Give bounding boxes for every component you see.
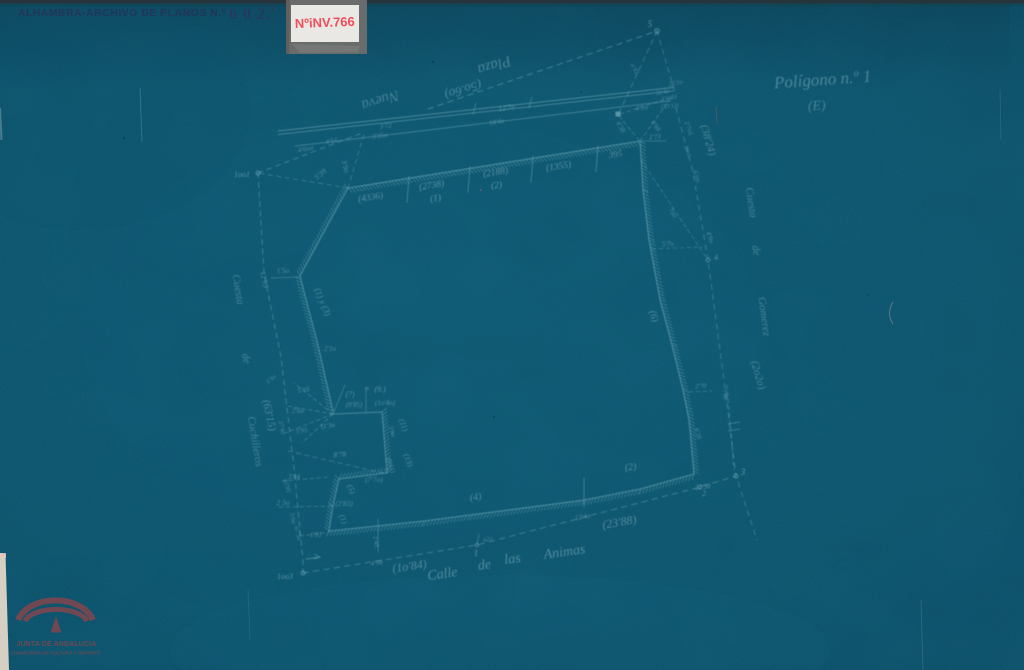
svg-text:1oo3: 1oo3 bbox=[277, 572, 293, 581]
svg-text:1: 1 bbox=[474, 548, 479, 558]
svg-text:4: 4 bbox=[714, 253, 718, 262]
svg-text:(4): (4) bbox=[469, 491, 483, 504]
svg-text:(2'83): (2'83) bbox=[335, 499, 353, 508]
svg-text:2'70: 2'70 bbox=[695, 383, 707, 391]
svg-text:(9.): (9.) bbox=[374, 385, 386, 394]
svg-text:1'5o: 1'5o bbox=[277, 266, 290, 275]
svg-text:m: m bbox=[365, 386, 370, 392]
svg-text:8'78: 8'78 bbox=[333, 449, 347, 459]
svg-text:de: de bbox=[477, 557, 492, 574]
svg-text:5'7o: 5'7o bbox=[662, 240, 675, 249]
svg-text:(1o'4o): (1o'4o) bbox=[375, 399, 396, 407]
svg-text:(1): (1) bbox=[429, 192, 442, 205]
svg-text:de: de bbox=[749, 245, 762, 257]
svg-text:ALHAMBRA-ARCHIVO DE PLANOS N.º: ALHAMBRA-ARCHIVO DE PLANOS N.º bbox=[18, 8, 226, 19]
svg-text:las: las bbox=[503, 551, 522, 568]
svg-text:(E): (E) bbox=[807, 98, 826, 114]
svg-text:2'6o: 2'6o bbox=[292, 407, 304, 415]
svg-text:(7'7o): (7'7o) bbox=[365, 475, 383, 484]
svg-text:22'38: 22'38 bbox=[695, 482, 712, 492]
svg-text:5: 5 bbox=[648, 19, 653, 29]
svg-text:(7): (7) bbox=[345, 390, 355, 399]
svg-text:2 5o: 2 5o bbox=[276, 498, 289, 507]
svg-text:2'1o: 2'1o bbox=[324, 345, 336, 353]
svg-text:de: de bbox=[239, 352, 252, 364]
svg-text:o2o: o2o bbox=[482, 535, 493, 543]
svg-text:CONSEJERÍA DE CULTURA Y DEPORT: CONSEJERÍA DE CULTURA Y DEPORTE bbox=[11, 649, 101, 656]
svg-text:6 0 2.: 6 0 2. bbox=[229, 6, 271, 23]
svg-text:1'81: 1'81 bbox=[310, 531, 322, 539]
svg-text:NºiNV.766: NºiNV.766 bbox=[295, 14, 355, 31]
svg-text:(8'85): (8'85) bbox=[346, 401, 363, 409]
svg-text:3: 3 bbox=[740, 467, 746, 477]
svg-text:2'73: 2'73 bbox=[649, 133, 662, 142]
svg-text:JUNTA DE ANDALUCIA: JUNTA DE ANDALUCIA bbox=[17, 641, 97, 648]
svg-text:(2): (2) bbox=[490, 179, 503, 192]
svg-text:1oo1: 1oo1 bbox=[234, 170, 250, 179]
svg-text:(2): (2) bbox=[624, 461, 638, 474]
